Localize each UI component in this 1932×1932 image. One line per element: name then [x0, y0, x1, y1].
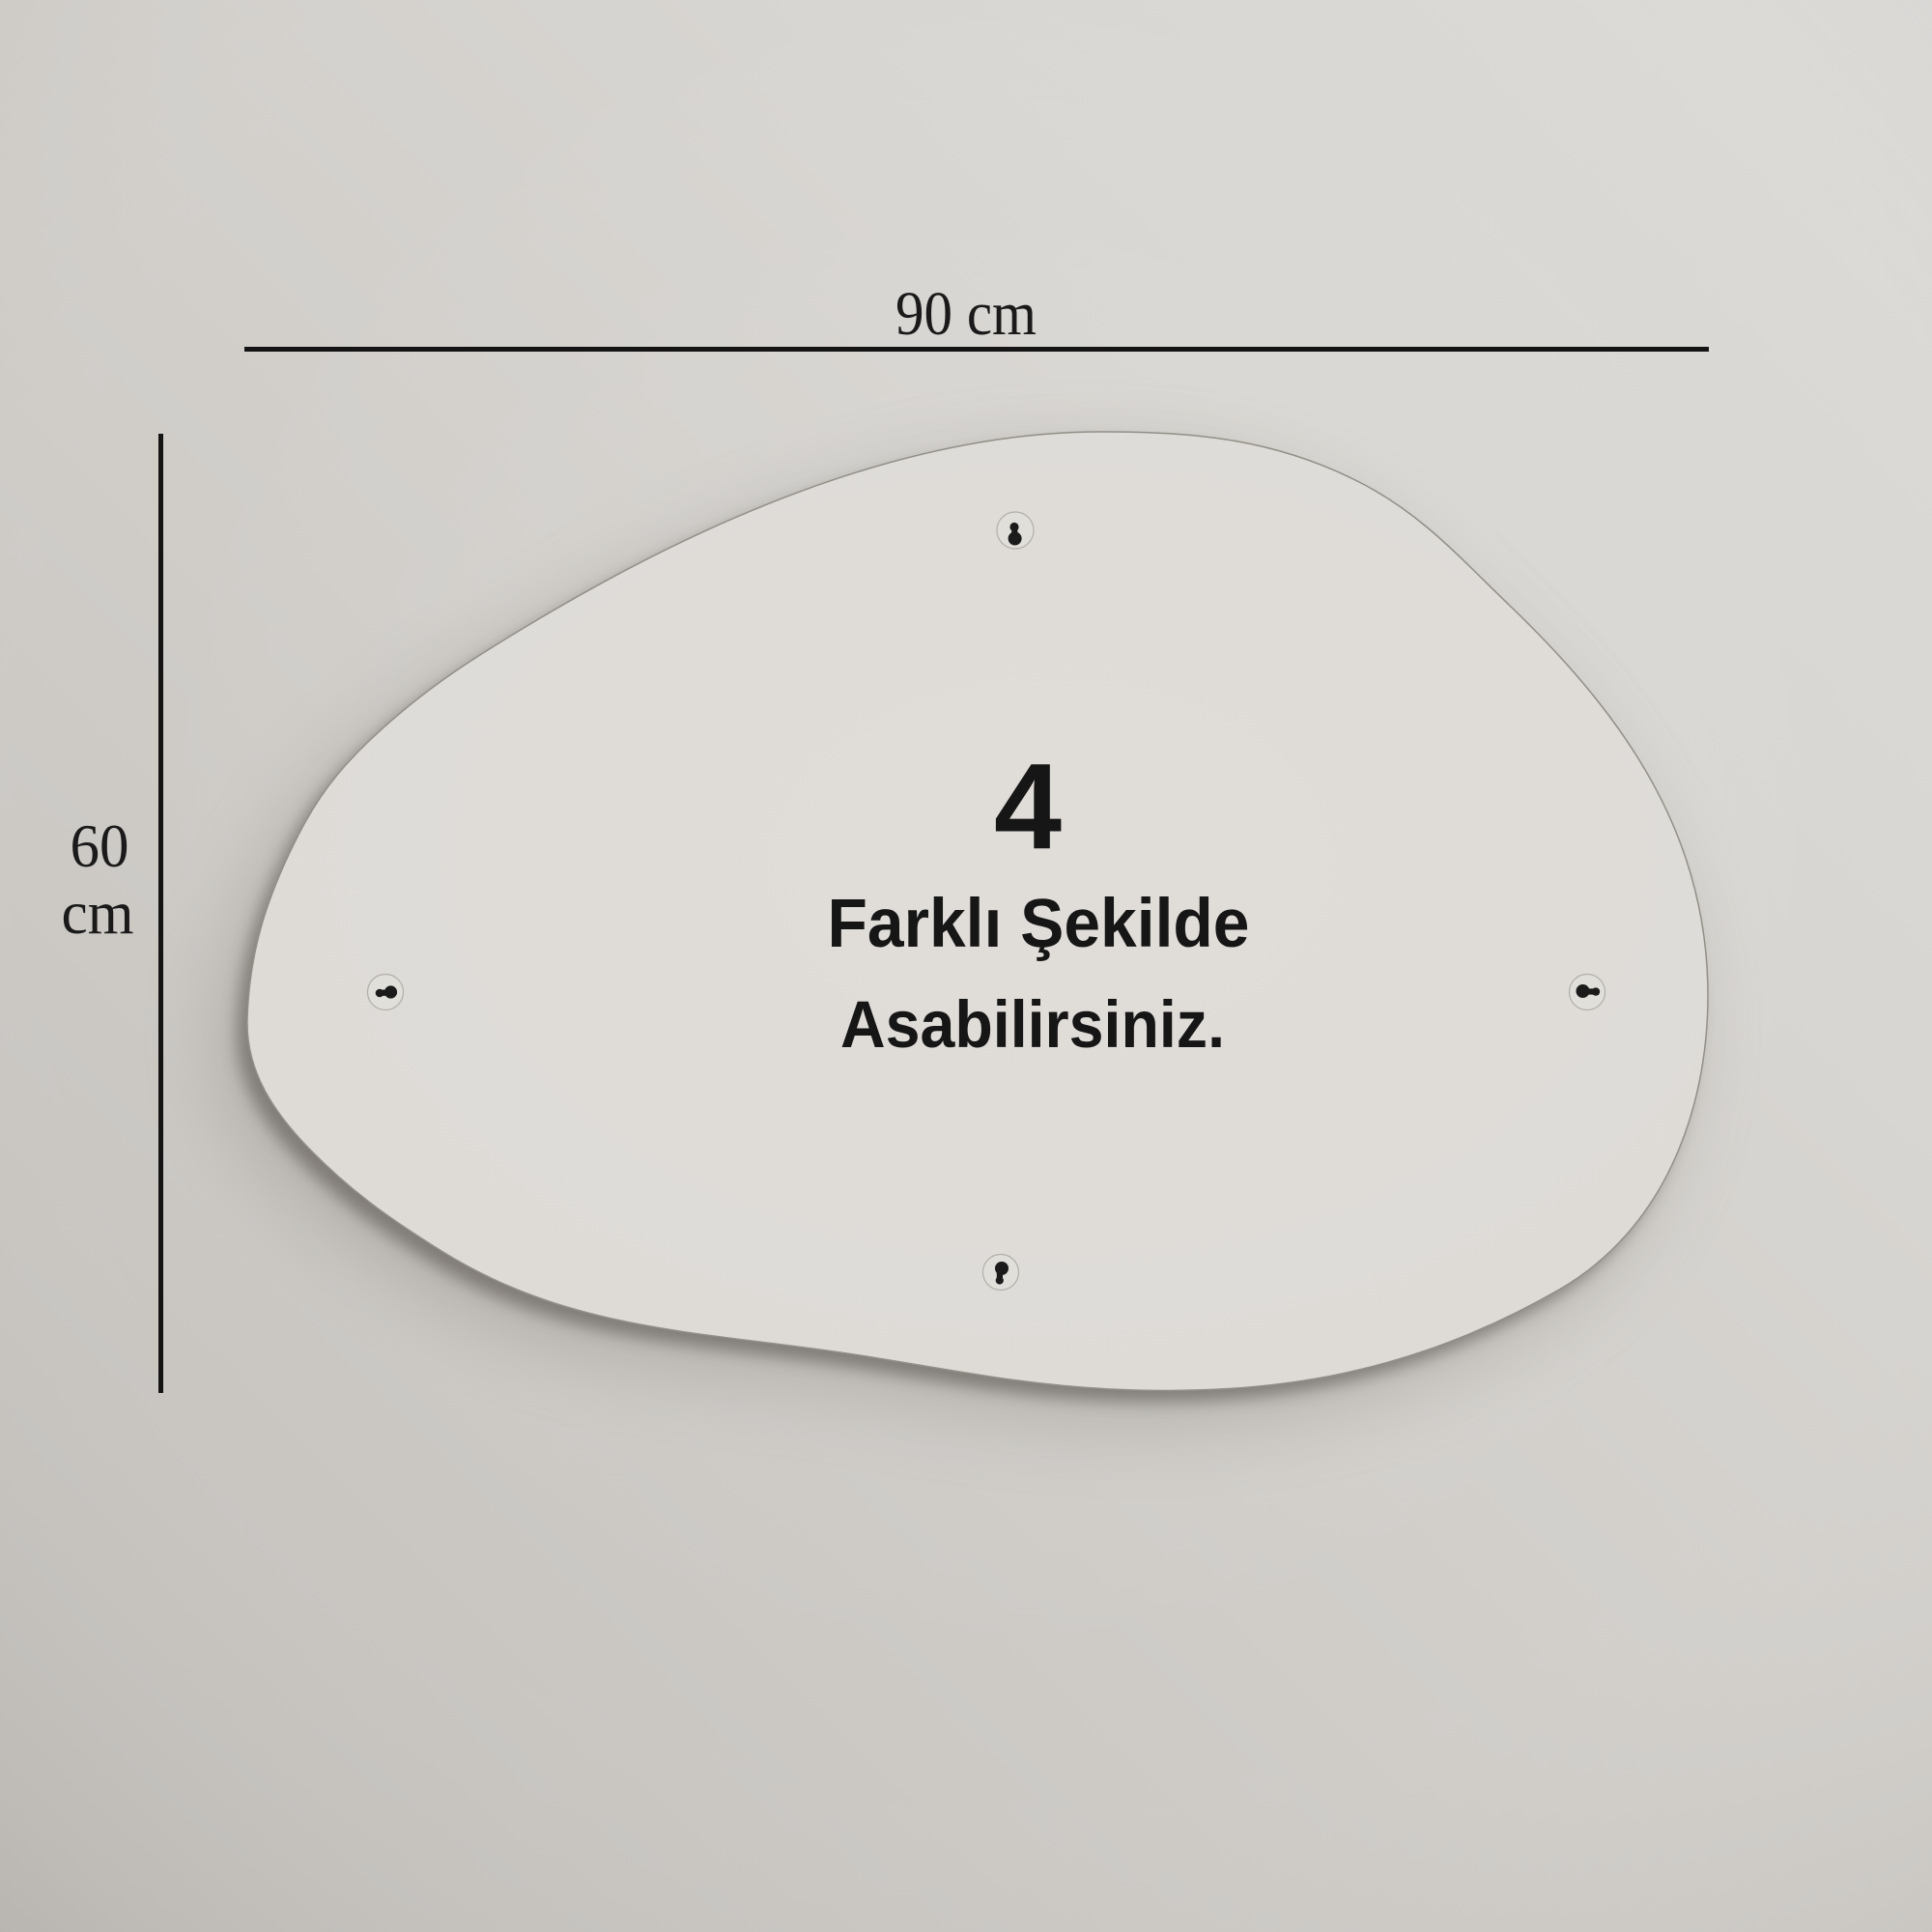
svg-text:Asabilirsiniz.: Asabilirsiniz. — [840, 987, 1225, 1062]
svg-text:Farklı Şekilde: Farklı Şekilde — [828, 886, 1250, 962]
svg-text:60: 60 — [71, 811, 129, 880]
svg-text:4: 4 — [994, 738, 1062, 874]
svg-text:cm: cm — [62, 878, 134, 947]
svg-text:90 cm: 90 cm — [895, 279, 1037, 349]
